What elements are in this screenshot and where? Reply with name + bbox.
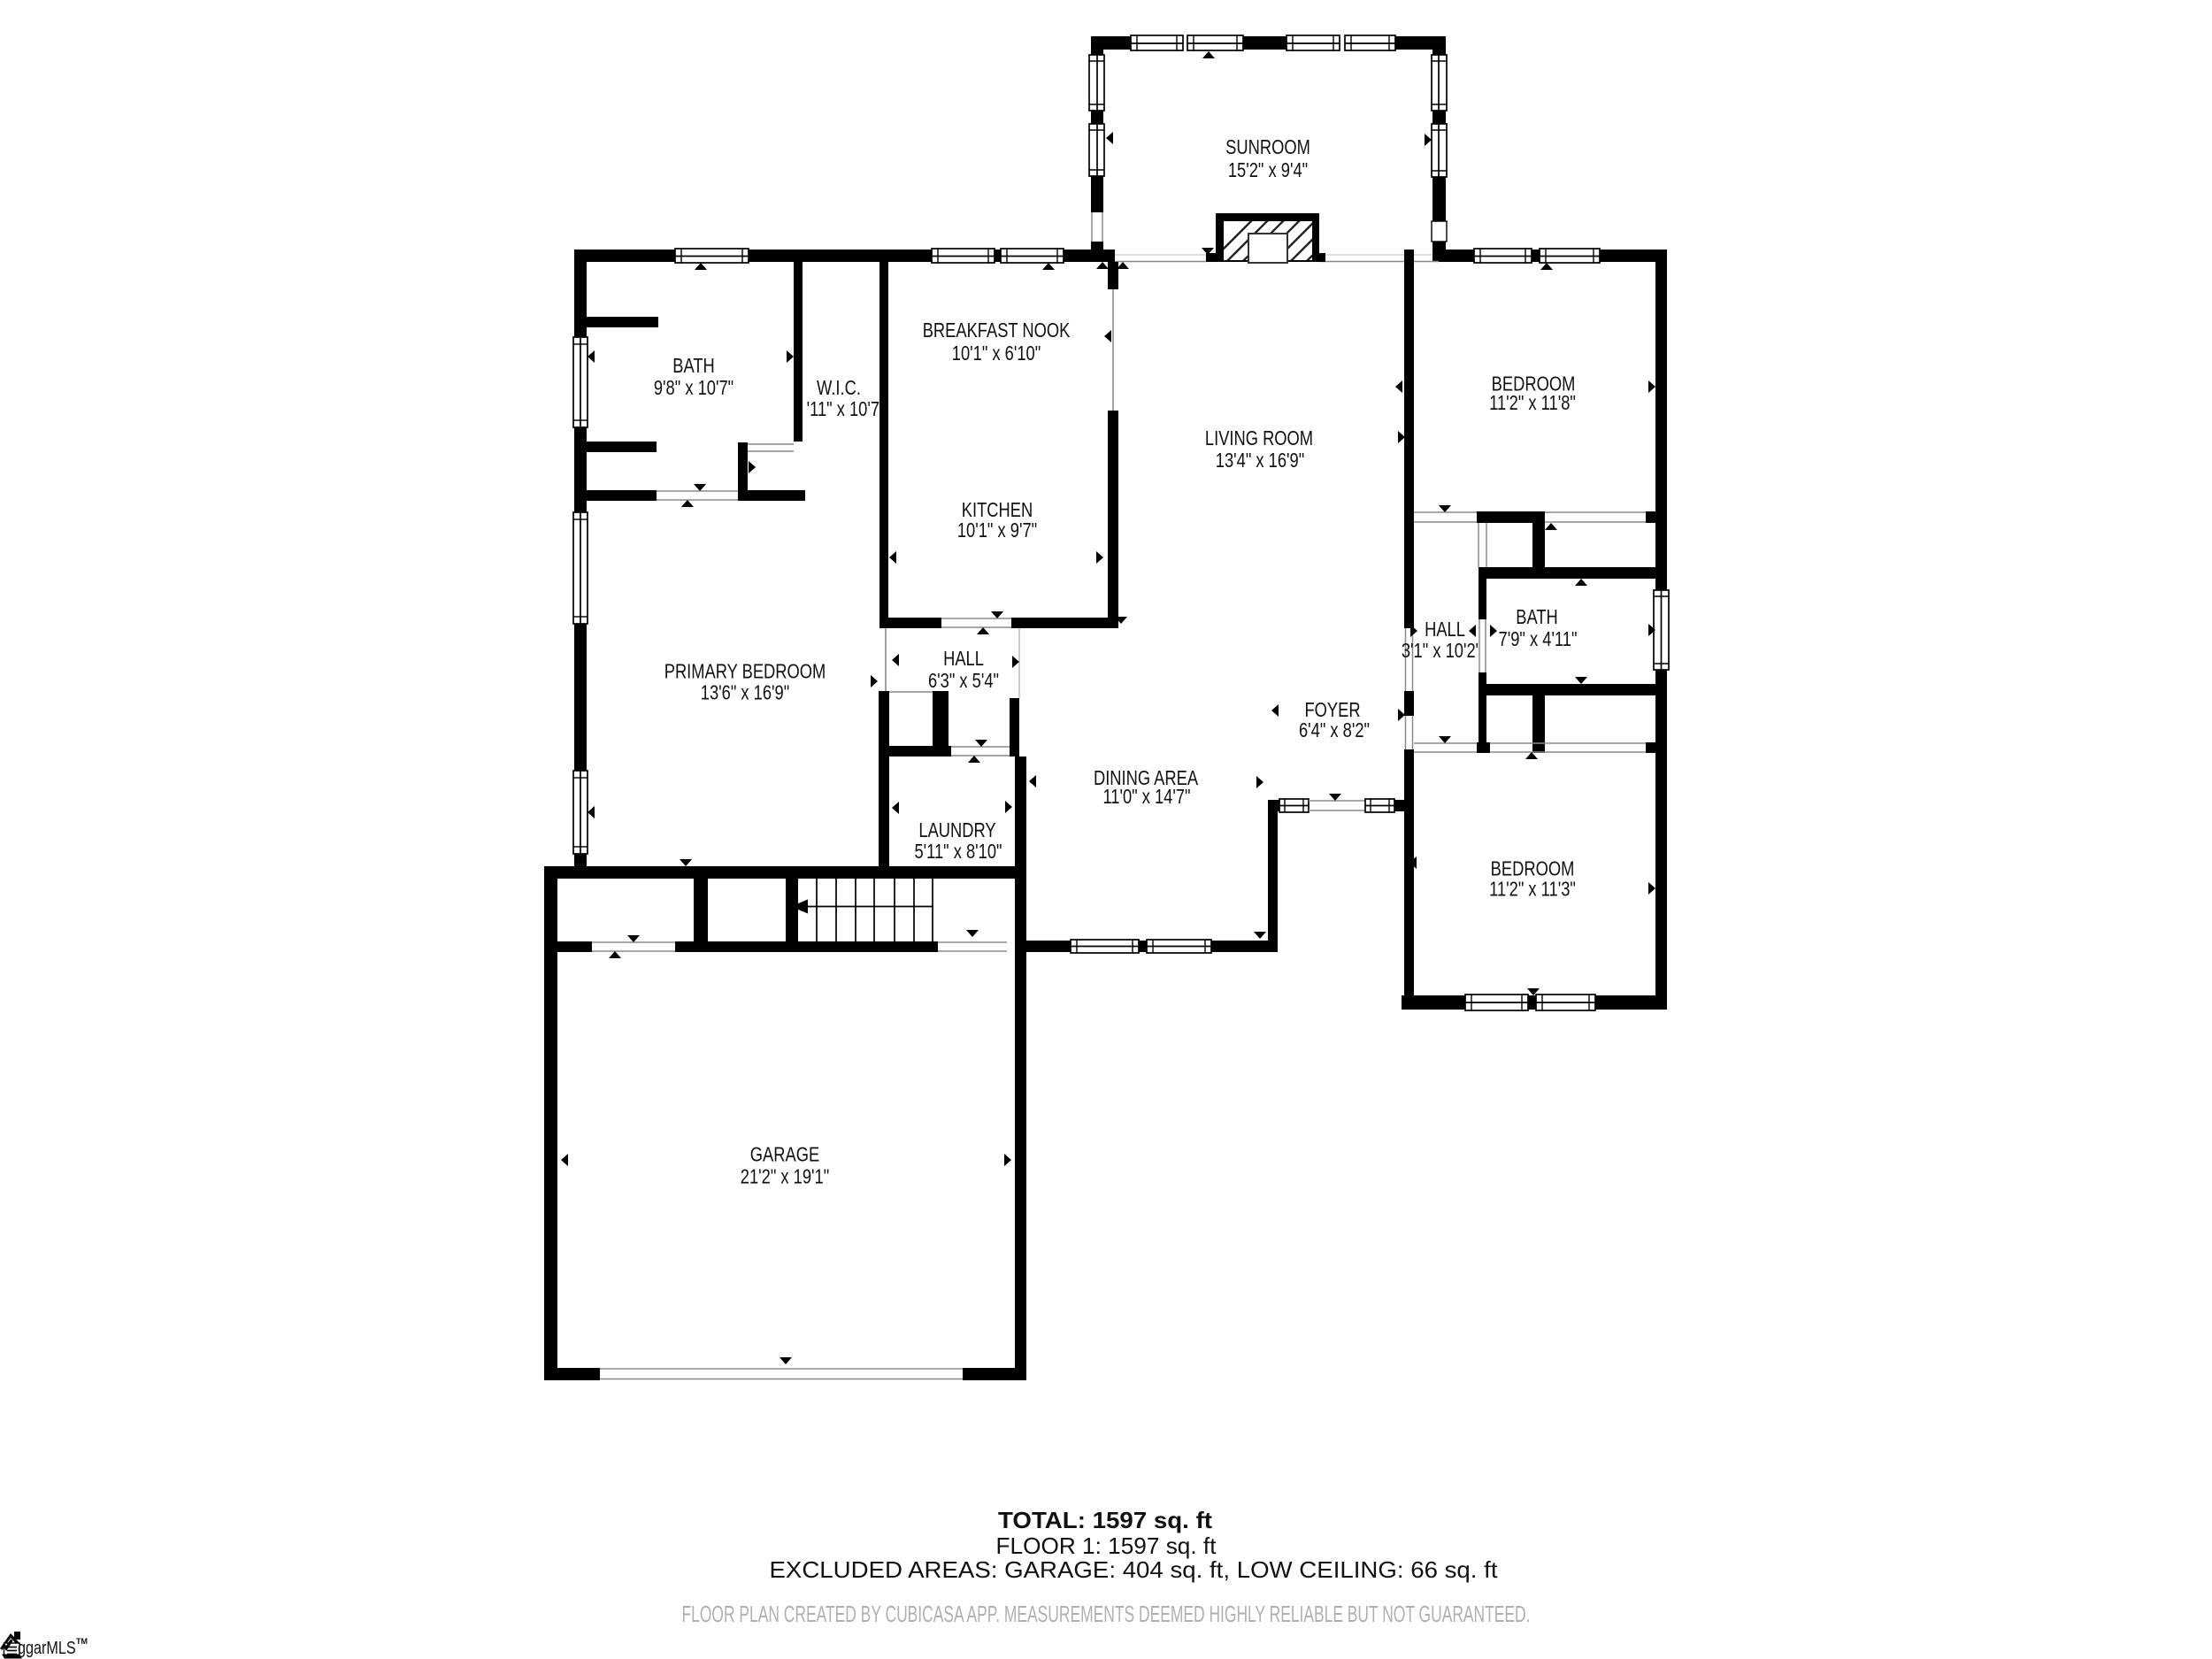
svg-text:11'2" x 11'3": 11'2" x 11'3" — [1489, 878, 1576, 901]
svg-text:PRIMARY BEDROOM: PRIMARY BEDROOM — [664, 660, 826, 683]
svg-text:6'3" x 5'4": 6'3" x 5'4" — [928, 670, 999, 693]
svg-text:11'0" x 14'7": 11'0" x 14'7" — [1102, 786, 1190, 809]
svg-text:TM: TM — [76, 1637, 88, 1646]
svg-text:7'9" x 4'11": 7'9" x 4'11" — [1499, 628, 1578, 651]
svg-text:GARAGE: GARAGE — [750, 1143, 819, 1166]
svg-text:13'4" x 16'9": 13'4" x 16'9" — [1216, 449, 1304, 472]
svg-text:LIVING ROOM: LIVING ROOM — [1205, 427, 1313, 450]
svg-text:W.I.C.: W.I.C. — [817, 377, 861, 400]
svg-text:TOTAL: 1597 sq. ft: TOTAL: 1597 sq. ft — [998, 1507, 1212, 1533]
svg-text:EXCLUDED AREAS: GARAGE: 404 sq: EXCLUDED AREAS: GARAGE: 404 sq. ft, LOW … — [770, 1556, 1499, 1583]
svg-text:FOYER: FOYER — [1304, 699, 1360, 722]
svg-text:FLOOR PLAN CREATED BY CUBICASA: FLOOR PLAN CREATED BY CUBICASA APP. MEAS… — [682, 1601, 1531, 1627]
svg-text:KITCHEN: KITCHEN — [962, 499, 1033, 522]
svg-text:LAUNDRY: LAUNDRY — [918, 819, 995, 842]
svg-text:11'2" x 11'8": 11'2" x 11'8" — [1489, 392, 1576, 415]
svg-text:5'11" x 8'10": 5'11" x 8'10" — [914, 841, 1002, 864]
svg-text:3'1" x 10'2": 3'1" x 10'2" — [1402, 640, 1481, 663]
svg-text:HALL: HALL — [1425, 618, 1465, 641]
svg-text:6'4" x 8'2": 6'4" x 8'2" — [1299, 719, 1370, 742]
svg-text:9'8" x 10'7": 9'8" x 10'7" — [654, 377, 733, 400]
svg-text:FLOOR 1: 1597 sq. ft: FLOOR 1: 1597 sq. ft — [996, 1532, 1217, 1559]
svg-text:10'1" x 9'7": 10'1" x 9'7" — [957, 519, 1037, 542]
svg-text:BATH: BATH — [1516, 606, 1558, 629]
svg-text:10'1" x 6'10": 10'1" x 6'10" — [952, 342, 1041, 365]
svg-text:HALL: HALL — [943, 648, 984, 671]
svg-text:BREAKFAST NOOK: BREAKFAST NOOK — [923, 319, 1071, 342]
svg-text:21'2" x 19'1": 21'2" x 19'1" — [741, 1165, 829, 1188]
svg-text:BEDROOM: BEDROOM — [1491, 857, 1575, 880]
svg-text:13'6" x 16'9": 13'6" x 16'9" — [701, 681, 789, 704]
svg-text:BATH: BATH — [672, 355, 715, 378]
svg-text:15'2" x 9'4": 15'2" x 9'4" — [1228, 159, 1308, 182]
svg-text:ggarMLS: ggarMLS — [18, 1638, 76, 1657]
svg-text:SUNROOM: SUNROOM — [1225, 136, 1310, 159]
svg-text:5'11" x 10'7": 5'11" x 10'7" — [797, 398, 885, 421]
